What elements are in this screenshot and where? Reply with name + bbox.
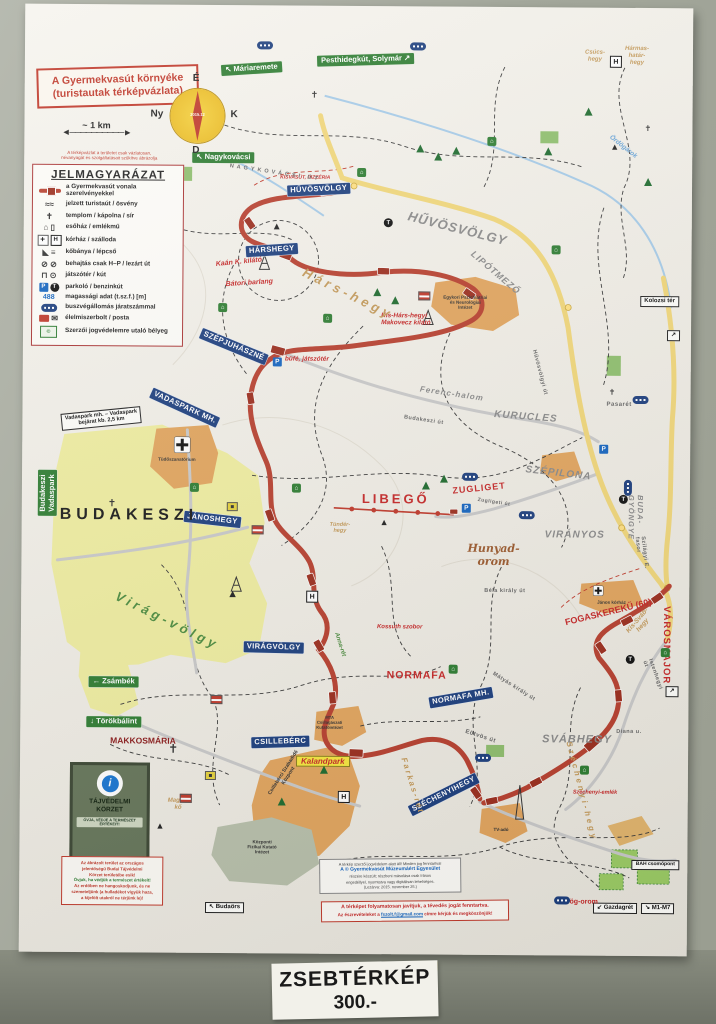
label-bufe: büfé, játszótér — [285, 356, 329, 364]
pine-tree-icon — [416, 144, 424, 152]
legend-item-label: behajtás csak H–P / lezárt út — [65, 261, 150, 269]
station-sign-vadaspark-mh: VADASPARK MH. — [149, 388, 220, 428]
pine-tree-icon — [434, 153, 442, 161]
legend-item: ✝templom / kápolna / sír — [36, 212, 180, 222]
label-zugliget: ZUGLIGET — [452, 480, 506, 496]
legend-item-label: kőbánya / lépcső — [66, 249, 117, 256]
scale-line: ◄──────────► — [44, 130, 148, 136]
street-nagykovacsi-ut: NAGYKOVÁCSI ÚT — [229, 163, 321, 183]
eco-notice-box: Az ábrázolt terület az országosjelentősé… — [61, 856, 163, 905]
trail-marker-icon — [418, 291, 430, 300]
trail-marker-icon — [252, 525, 264, 534]
compass-west: Ny — [151, 109, 164, 120]
compass-south: D — [192, 145, 199, 156]
copyright-line: (Lezárva: 2015. november 25.) — [322, 884, 458, 891]
scale-bar: ~ 1 km ◄──────────► — [44, 120, 148, 136]
sign-budaors: ↖ Budaörs — [205, 902, 244, 913]
building-mta: MTA Csillagászati Kutatóintézet — [316, 716, 343, 731]
pine-tree-icon — [320, 766, 328, 774]
area-szepilona: SZÉPILONA — [525, 464, 592, 483]
station-sign-szepjuhaszne: SZÉPJUHÁSZNÉ — [199, 328, 269, 365]
callout-vadaspark: Vadaspark mh. – Vadaspark bejárat kb. 2,… — [60, 406, 142, 430]
compass-north: É — [193, 73, 200, 84]
hill-tunder-hegy: Tündér- hegy — [330, 522, 351, 535]
shelter-icon: ⌂ — [449, 665, 458, 674]
legend-item: ⌂ ▯esőház / emlékmű — [36, 223, 180, 233]
pine-tree-icon — [585, 108, 593, 116]
direction-sign-zsambek: ← Zsámbék — [89, 676, 139, 687]
sign-bah: BAH csomópont — [631, 860, 679, 870]
arrow-sign: ↗ — [667, 330, 680, 341]
bus-stop-icon — [410, 42, 426, 50]
bus-stop-icon — [257, 41, 273, 49]
building-csilleberc-kozpont: Csillebérci Szabadidő Központ — [268, 750, 305, 800]
legend-item: PTparkoló / benzinkút — [35, 283, 179, 293]
station-sign-normafa-mh: NORMAFA MH. — [428, 687, 493, 708]
legend-item-label: esőház / emlékmű — [66, 224, 120, 231]
area-huvosvolgy: HŰVÖSVÖLGY — [406, 209, 508, 249]
shelter-icon: ⌂ — [292, 484, 301, 493]
legend-item: ©Szerzői jogvédelemre utaló bélyeg — [35, 326, 179, 339]
station-sign-harshegy: HÁRSHEGY — [246, 243, 298, 257]
copyright-box: A térkép szerzői jogvédelem alatt áll! M… — [319, 858, 461, 894]
meadow-anna-ret: Anna-rét — [332, 632, 346, 658]
legend-box: JELMAGYARÁZAT a Gyermekvasút vonala szer… — [31, 164, 184, 347]
wall-background: HŰVÖSVÖLGYHÁRSHEGYSZÉPJUHÁSZNÉVADASPARK … — [0, 0, 716, 1024]
legend-item-label: Szerzői jogvédelemre utaló bélyeg — [65, 328, 168, 336]
hill-hunyad-orom: Hunyad- orom — [467, 543, 519, 569]
legend-item: ≈≈jelzett turistaút / ösvény — [36, 200, 180, 210]
label-kaan-kilato: Kaán K. kilátó — [216, 256, 263, 269]
legend-item: a Gyermekvasút vonala szerelvényekkel — [36, 184, 180, 199]
price-tag: ZSEBTÉRKÉP 300.- — [271, 960, 438, 1019]
bus-stop-icon — [554, 896, 570, 904]
sign-kolozsi-ter: Kolozsi tér — [640, 296, 679, 307]
legend-item: 488magassági adat (t.sz.f.) [m] — [35, 294, 179, 302]
street-diana-u: Diana u. — [616, 729, 641, 735]
direction-sign-mariaremete: ↖ Máriaremete — [221, 61, 282, 75]
bus-stop-icon — [624, 480, 632, 496]
stamp-icon: © — [35, 326, 62, 338]
shop-icon: ✉ — [35, 314, 62, 323]
legend-item-label: templom / kápolna / sír — [66, 213, 134, 220]
parking-icon: P — [273, 357, 282, 366]
area-kurucles: KURUCLES — [494, 409, 558, 425]
price-tag-amount: 300.- — [333, 991, 377, 1014]
label-kossuth-szobor: Kossuth szobor — [377, 624, 422, 631]
nature-reserve-subtitle: ÓVJA, VÉDJE A TERMÉSZET ÉRTÉKEIT! — [77, 817, 143, 827]
area-lipotmezo: LIPÓTMEZŐ — [469, 249, 523, 297]
fuel-icon: T — [619, 495, 628, 504]
area-budagyongye: BUDA-GYÖNGYE — [626, 495, 644, 541]
legend-item: ⊘ ⊘behajtás csak H–P / lezárt út — [35, 260, 179, 270]
legend-item-label: magassági adat (t.sz.f.) [m] — [65, 294, 146, 301]
peak-icon: ▲ — [380, 517, 389, 527]
hotel-icon: H — [306, 591, 318, 603]
shelter-icon: ⌂ — [580, 766, 589, 775]
label-makkosmaria: MAKKOSMÁRIA — [110, 736, 176, 746]
label-libego: LIBEGŐ — [362, 492, 430, 507]
arrow-sign: ↗ — [665, 686, 678, 697]
legend-item-label: játszótér / kút — [65, 272, 106, 279]
town-budakeszi: BUDAKESZI — [60, 506, 198, 525]
peak-icon: ▲ — [272, 221, 282, 233]
rail-icon — [36, 189, 63, 193]
feedback-pre: Az észrevételeket a — [338, 912, 381, 917]
parking-icon: P — [599, 445, 608, 454]
street-bela-kiraly-ut: Béla király út — [484, 588, 525, 595]
pine-tree-icon — [644, 178, 652, 186]
bus-icon — [35, 304, 62, 312]
direction-sign-vadaspark: Budakeszi Vadaspark — [38, 470, 58, 516]
legend-item: ✉élelmiszerbolt / posta — [35, 314, 179, 324]
area-ferenc-halom: Ferenc-halom — [419, 384, 484, 403]
shelter-icon: ⌂ — [552, 245, 561, 254]
area-viranyos: VIRÁNYOS — [545, 529, 605, 541]
price-tag-title: ZSEBTÉRKÉP — [279, 965, 431, 992]
pine-tree-icon — [373, 288, 381, 296]
feedback-line2: Az észrevételeket a fszolt.f@gmail.com c… — [324, 910, 506, 919]
legend-item-label: élelmiszerbolt / posta — [65, 315, 129, 322]
bus-stop-icon — [519, 511, 535, 519]
feedback-email: fszolt.f@gmail.com — [381, 911, 423, 916]
hill-harmashatar-hegy: Hármas- határ- hegy — [625, 46, 649, 67]
label-varosmajor: VÁROSMAJOR — [660, 606, 671, 684]
hospital-icon: +H — [36, 235, 63, 246]
shelter-icon: ⌂ ▯ — [36, 223, 63, 232]
building-janos-korhaz: János kórház — [597, 600, 626, 605]
bus-stop-icon — [462, 473, 478, 481]
sign-m1-m7: ↘ M1-M7 — [641, 903, 674, 914]
direction-sign-pesthidegkut: Pesthidegkút, Solymár ↗ — [317, 53, 414, 66]
parking-icon: P — [462, 504, 471, 513]
street-zugligeti-ut: Zugligeti út — [477, 498, 510, 509]
pine-tree-icon — [440, 475, 448, 483]
station-sign-csilleberc: CSILLEBÉRC — [251, 736, 309, 748]
shelter-icon: ⌂ — [661, 648, 670, 657]
legend-item: buszvégállomás járatszámmal — [35, 304, 179, 313]
hill-csucs-hegy: Csúcs- hegy — [585, 50, 605, 64]
legend-item-label: a Gyermekvasút vonala szerelvényekkel — [66, 184, 180, 199]
shelter-icon: ⌂ — [323, 314, 332, 323]
pine-tree-icon — [452, 147, 460, 155]
station-sign-huvosvolgy: HŰVÖSVÖLGY — [287, 183, 350, 196]
fuel-icon: T — [626, 655, 635, 664]
hill-hars-hegy: Hárs-hegy — [300, 266, 396, 324]
building-pszichiatria: Egykori Pszichiátriai és Neurológiai Int… — [443, 295, 487, 311]
church-icon: ✝ — [609, 388, 616, 397]
bus-stop-icon — [475, 754, 491, 762]
fuel-icon: T — [384, 218, 393, 227]
playground-icon: ⊓ ⊙ — [35, 271, 62, 280]
direction-sign-torokbalint: ↓ Törökbálint — [86, 716, 141, 727]
legend-item-label: jelzett turistaút / ösvény — [66, 201, 138, 208]
label-batori-barlang: Bátori barlang — [225, 278, 273, 289]
sign-gazdagret: ↙ Gazdagrét — [593, 903, 637, 914]
church-icon: ✝ — [311, 90, 319, 100]
feedback-box: A térképet folyamatosan javítjuk, a téve… — [321, 899, 509, 922]
pine-tree-icon — [422, 481, 430, 489]
trail-marker-icon — [227, 502, 238, 511]
peak-icon: ▲ — [610, 142, 619, 152]
peak-icon: ▲ — [156, 821, 165, 831]
building-tv-ado: TV-adó — [494, 827, 509, 832]
legend-item-label: buszvégállomás járatszámmal — [65, 304, 155, 312]
label-normafa: NORMAFA — [387, 669, 447, 681]
quarry-icon: ◣ ≡ — [36, 248, 63, 257]
feedback-post: címre kérjük és megköszönjük! — [423, 910, 493, 916]
legend-item: +Hkórház / szálloda — [36, 235, 180, 247]
church-icon: ✝ — [644, 124, 651, 133]
shelter-icon: ⌂ — [190, 483, 199, 492]
eco-notice-line: a kijelölt utakról ne térjünk le)! — [64, 895, 160, 901]
station-sign-viragvolgy: VIRÁGVÖLGY — [244, 641, 304, 653]
nature-reserve-sign: i TÁJVÉDELMI KÖRZET ÓVJA, VÉDJE A TERMÉS… — [69, 762, 150, 860]
legend-item-label: kórház / szálloda — [66, 237, 116, 244]
bus-stop-icon — [633, 396, 649, 404]
church-icon: ✝ — [36, 212, 63, 221]
pine-tree-icon — [391, 296, 399, 304]
building-kfki: Központi Fizikai Kutató Intézet — [247, 839, 276, 855]
peak-icon: ▲ — [227, 588, 238, 601]
trail-marker-icon — [180, 794, 192, 803]
area-svabhegy: SVÁBHEGY — [542, 733, 612, 746]
valley-virag-volgy: Virág-völgy — [113, 589, 222, 653]
legend-item: ⊓ ⊙játszótér / kút — [35, 271, 179, 281]
street-huvosvolgyi-ut: Hűvösvölgyi út — [531, 349, 549, 396]
map-note: A térképvázlat a területet csak vázlatos… — [34, 150, 184, 162]
area-pasaret: Pasarét — [607, 402, 632, 409]
parking-icon: PT — [35, 283, 62, 292]
street-eotvos-ut: Eötvös út — [464, 729, 496, 746]
legend-item-label: parkoló / benzinkút — [65, 284, 122, 291]
direction-sign-nagykovacsi: ↖ Nagykovácsi — [192, 152, 254, 163]
info-circle: i — [97, 770, 123, 796]
hotel-icon: H — [338, 791, 350, 803]
trail-marker-icon — [210, 695, 222, 704]
hotel-icon: H — [610, 56, 622, 68]
map-poster: HŰVÖSVÖLGYHÁRSHEGYSZÉPJUHÁSZNÉVADASPARK … — [19, 4, 694, 957]
legend-item: ◣ ≡kőbánya / lépcső — [36, 248, 180, 258]
church-icon: ✝ — [168, 743, 178, 757]
shelter-icon: ⌂ — [487, 137, 496, 146]
legend-title: JELMAGYARÁZAT — [36, 169, 180, 182]
trail-marker-icon — [205, 771, 216, 780]
street-szilagyi-fasor: Szilágyi E. fasor — [633, 536, 651, 581]
church-icon: ✝ — [108, 498, 116, 510]
compass-rose: 2015.12 É K D Ny — [166, 85, 228, 147]
trail-icon: ≈≈ — [36, 200, 63, 209]
elevation-icon: 488 — [35, 294, 62, 301]
pine-tree-icon — [544, 147, 552, 155]
nature-reserve-title: TÁJVÉDELMI KÖRZET — [73, 798, 147, 814]
street-budakeszi-ut: Budakeszi út — [404, 414, 444, 426]
shelter-icon: ⌂ — [357, 168, 366, 177]
compass-east: K — [231, 109, 238, 120]
info-icon: i — [101, 775, 118, 792]
compass-date: 2015.12 — [167, 112, 229, 117]
pine-tree-icon — [278, 797, 286, 805]
street-matyas-kiraly-ut: Mátyás király út — [491, 671, 536, 703]
shelter-icon: ⌂ — [218, 303, 227, 312]
building-tudoszanatorium: Tüdőszanatórium — [158, 457, 196, 462]
restricted-icon: ⊘ ⊘ — [35, 260, 62, 269]
